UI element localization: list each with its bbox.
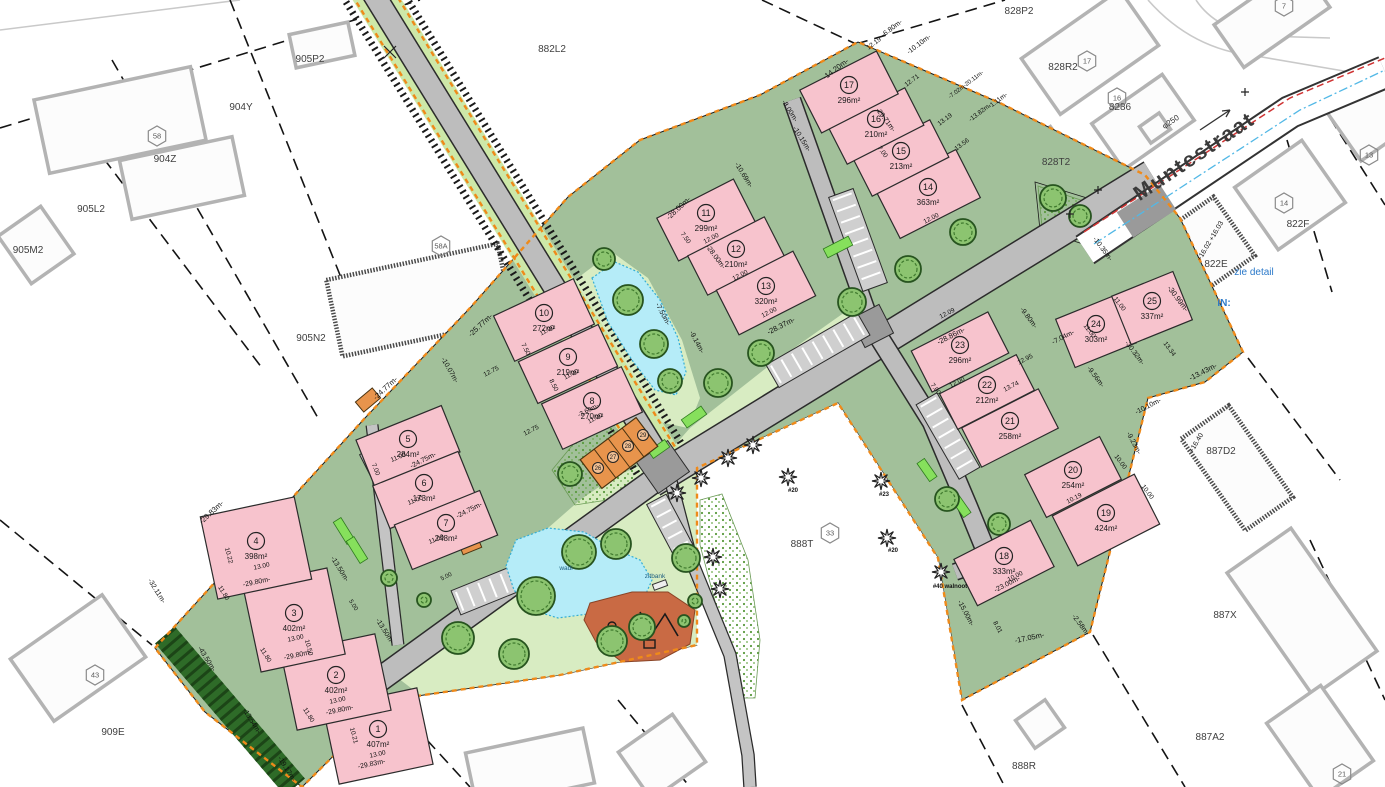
house-number: 16 <box>1113 94 1121 103</box>
house-number: 21 <box>1338 770 1346 779</box>
existing-tree-star-icon <box>668 484 686 502</box>
parcel-label-887D2: 887D2 <box>1206 446 1236 457</box>
lot-area: 212m² <box>976 396 999 405</box>
garage-29: 29 <box>638 430 649 441</box>
parcel-label-828R2: 828R2 <box>1048 62 1078 73</box>
lot-number: 2 <box>333 670 338 680</box>
parcel-label-822E: 822E <box>1204 259 1228 270</box>
parcel-label-905N2: 905N2 <box>296 333 326 344</box>
bench-label: zitbank <box>645 573 666 580</box>
lot-number: 1 <box>375 724 380 734</box>
tree-icon <box>558 462 582 486</box>
tree-icon <box>640 330 668 358</box>
parcel-label-888R: 888R <box>1012 761 1036 772</box>
tree-icon <box>562 535 596 569</box>
site-plan-canvas: 1407m²2402m²3402m²4398m²5284m²6173m²7248… <box>0 0 1385 787</box>
house-number: 58 <box>153 132 161 141</box>
tree-icon <box>895 256 921 282</box>
garage-number: 29 <box>640 433 647 439</box>
tree-icon <box>748 340 774 366</box>
tree-icon <box>704 369 732 397</box>
lot-number: 14 <box>923 182 933 192</box>
house-number: 33 <box>826 529 834 538</box>
tree-icon <box>988 513 1010 535</box>
existing-tree-star-icon <box>878 529 896 547</box>
lot-number: 3 <box>291 608 296 618</box>
parcel-label-828T2: 828T2 <box>1042 157 1071 168</box>
tree-icon <box>601 529 631 559</box>
existing-tree-star-icon <box>932 563 950 581</box>
parcel-label-904Z: 904Z <box>154 154 177 165</box>
parcel-label-887X: 887X <box>1213 610 1237 621</box>
lot-number: 22 <box>982 380 992 390</box>
lot-area: 303m² <box>1085 335 1108 344</box>
lot-number: 12 <box>731 244 741 254</box>
lot-area: 407m² <box>367 740 390 749</box>
lot-number: 15 <box>896 146 906 156</box>
tree-icon <box>597 626 627 656</box>
tree-icon <box>613 285 643 315</box>
tree-icon <box>442 622 474 654</box>
tree-icon <box>517 577 555 615</box>
parcel-label-905P2: 905P2 <box>296 54 325 65</box>
tree-icon <box>593 248 615 270</box>
in-note: IN: <box>1217 298 1230 309</box>
lot-area: 337m² <box>1141 312 1164 321</box>
tree-icon <box>678 615 690 627</box>
tree-icon <box>1040 185 1066 211</box>
existing-tree-star-icon <box>692 469 710 487</box>
parcel-label-905L2: 905L2 <box>77 204 105 215</box>
lot-number: 17 <box>844 80 854 90</box>
existing-tree-label: #20 <box>788 488 799 494</box>
lot-area: 258m² <box>999 432 1022 441</box>
tree-icon <box>935 487 959 511</box>
garage-26: 26 <box>593 463 604 474</box>
garage-28: 28 <box>623 441 634 452</box>
house-number: 13 <box>1365 151 1373 160</box>
house-number: 14 <box>1280 199 1288 208</box>
tree-icon <box>381 570 397 586</box>
lot-number: 20 <box>1068 465 1078 475</box>
existing-tree-star-icon <box>711 580 729 598</box>
garage-27: 27 <box>608 452 619 463</box>
lot-area: 210m² <box>865 130 888 139</box>
lot-number: 9 <box>565 352 570 362</box>
lot-area: 363m² <box>917 198 940 207</box>
lot-area: 213m² <box>890 162 913 171</box>
lot-area: 296m² <box>949 356 972 365</box>
tree-icon <box>688 594 702 608</box>
lot-area: 299m² <box>695 224 718 233</box>
lot-number: 6 <box>421 478 426 488</box>
existing-tree-label: #20 <box>888 548 899 554</box>
house-number: 17 <box>1083 57 1091 66</box>
lot-number: 19 <box>1101 508 1111 518</box>
lot-area: 254m² <box>1062 481 1085 490</box>
tree-icon <box>950 219 976 245</box>
parcel-label-887A2: 887A2 <box>1196 732 1225 743</box>
existing-tree-star-icon <box>719 449 737 467</box>
lot-number: 13 <box>761 281 771 291</box>
lot-area: 402m² <box>283 624 306 633</box>
existing-tree-star-icon <box>779 468 797 486</box>
tree-icon <box>658 369 682 393</box>
existing-tree-star-icon <box>744 436 762 454</box>
parcel-label-882L2: 882L2 <box>538 44 566 55</box>
lot-number: 11 <box>701 208 710 218</box>
lot-area: 424m² <box>1095 524 1118 533</box>
house-number: 43 <box>91 671 99 680</box>
lot-area: 320m² <box>755 297 778 306</box>
tree-icon <box>499 639 529 669</box>
parcel-label-888T: 888T <box>791 539 814 550</box>
garage-number: 28 <box>625 444 632 450</box>
parcel-label-904Y: 904Y <box>229 102 253 113</box>
parcel-label-8286: 8286 <box>1109 102 1132 113</box>
existing-tree-star-icon <box>704 548 722 566</box>
tree-icon <box>629 614 655 640</box>
site-plan-drawing: 1407m²2402m²3402m²4398m²5284m²6173m²7248… <box>0 0 1385 787</box>
tree-icon <box>672 544 700 572</box>
existing-tree-label: #23 <box>879 492 890 498</box>
lot-area: 210m² <box>725 260 748 269</box>
parcel-label-828P2: 828P2 <box>1005 6 1034 17</box>
tree-icon <box>417 593 431 607</box>
existing-tree-label: #40 walnoot <box>933 584 967 590</box>
house-number: 7 <box>1282 2 1286 11</box>
parcel-label-822F: 822F <box>1287 219 1310 230</box>
lot-number: 7 <box>443 518 448 528</box>
wadi-label: wadi <box>558 565 572 572</box>
parcel-label-905M2: 905M2 <box>13 245 44 256</box>
lot-area: 296m² <box>838 96 861 105</box>
lot-number: 18 <box>999 551 1009 561</box>
lot-number: 10 <box>539 308 549 318</box>
lot-number: 24 <box>1091 319 1101 329</box>
lot-number: 4 <box>253 536 258 546</box>
house-number: 58A <box>434 242 447 251</box>
garage-number: 26 <box>595 466 602 472</box>
lot-area: 398m² <box>245 552 268 561</box>
tree-icon <box>1069 205 1091 227</box>
lot-number: 21 <box>1005 416 1015 426</box>
existing-tree-star-icon <box>872 472 890 490</box>
lot-area: 402m² <box>325 686 348 695</box>
lot-number: 25 <box>1147 296 1157 306</box>
see-detail-note: zie detail <box>1234 267 1273 278</box>
parcel-label-909E: 909E <box>101 727 125 738</box>
tree-icon <box>838 288 866 316</box>
lot-number: 23 <box>955 340 965 350</box>
lot-number: 5 <box>405 434 410 444</box>
garage-number: 27 <box>610 455 617 461</box>
